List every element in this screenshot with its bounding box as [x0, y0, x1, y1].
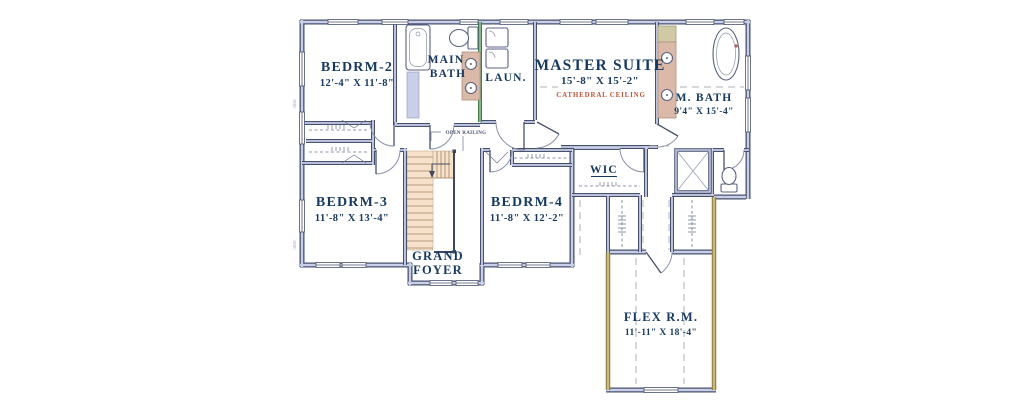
door-bedrm3 [376, 150, 400, 174]
door-flex-room [646, 252, 672, 273]
door-master-bath [657, 124, 678, 147]
washer-dryer [486, 28, 508, 68]
bedrm4-closet [486, 152, 570, 163]
master-suite-dims: 15'-8" X 15'-2" [561, 75, 639, 87]
bedrm3-dims: 11'-8" X 13'-4" [315, 213, 389, 224]
flex-hall-closets [618, 200, 696, 248]
wic-label: WIC [590, 164, 618, 176]
main-bath-toilet [450, 27, 479, 49]
door-bedrm4 [490, 150, 512, 172]
cathedral-ceiling-note: CATHEDRAL CEILING [556, 91, 646, 99]
flex-room-knee-walls [608, 197, 714, 390]
master-bath-tub [713, 28, 739, 80]
bedrm2-dims: 12'-4" X 11'-8" [320, 78, 394, 89]
grand-foyer-label-2: FOYER [413, 263, 463, 277]
master-bath-label: M. BATH [676, 92, 733, 104]
main-bath-label-2: BATH [430, 68, 467, 80]
master-bath-toilet [721, 168, 737, 193]
wic-rod [579, 182, 640, 186]
grand-foyer-label-1: GRAND [412, 249, 464, 263]
staircase [407, 150, 456, 254]
door-wic [620, 148, 644, 172]
floor-plan: BEDRM-2 12'-4" X 11'-8" MAIN BATH LAUN. … [0, 0, 1024, 420]
door-laundry [496, 122, 524, 150]
open-railing-note: OPEN RAILING [446, 131, 487, 136]
main-bath-tub [406, 25, 430, 118]
main-bath-label-1: MAIN [428, 54, 465, 66]
master-suite-label: MASTER SUITE [534, 57, 665, 74]
bedrm4-dims: 11'-8" X 12'-2" [490, 213, 564, 224]
interior-walls [302, 22, 749, 265]
bedrm3-label: BEDRM-3 [316, 195, 388, 210]
window-size-note: 3050 [292, 99, 297, 109]
laundry-label: LAUN. [485, 72, 526, 84]
window-size-note: 3050 [292, 240, 297, 250]
door-toilet-compartment [724, 150, 744, 170]
bedrm2-label: BEDRM-2 [321, 60, 393, 75]
flex-room-dims: 11'-11" X 18'-4" [625, 328, 697, 338]
bedrm4-label: BEDRM-4 [491, 195, 563, 210]
master-bath-dims: 9'4" X 15'-4" [674, 107, 734, 117]
door-master-suite [537, 122, 559, 148]
master-bath-shower [676, 150, 710, 192]
door-main-bath [430, 125, 454, 149]
floor-plan-drawing: BEDRM-2 12'-4" X 11'-8" MAIN BATH LAUN. … [0, 0, 1024, 420]
flex-room-label: FLEX R.M. [624, 310, 698, 324]
